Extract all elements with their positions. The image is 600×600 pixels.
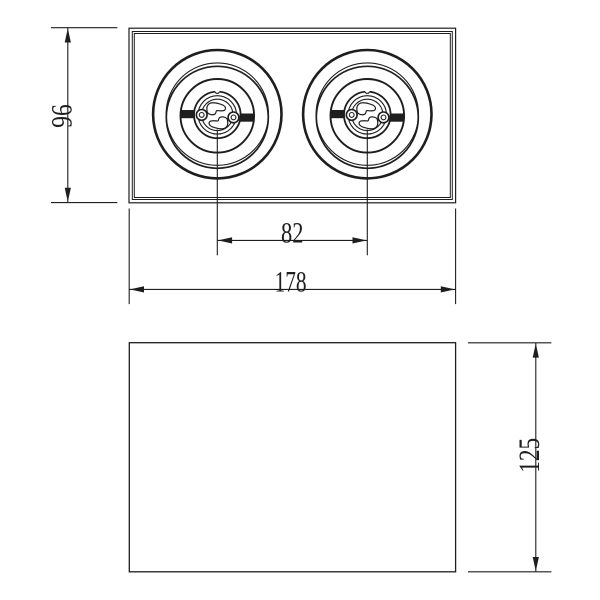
svg-text:82: 82 — [281, 217, 304, 249]
svg-text:96: 96 — [46, 104, 78, 128]
svg-text:125: 125 — [514, 438, 546, 473]
svg-text:178: 178 — [275, 266, 307, 298]
